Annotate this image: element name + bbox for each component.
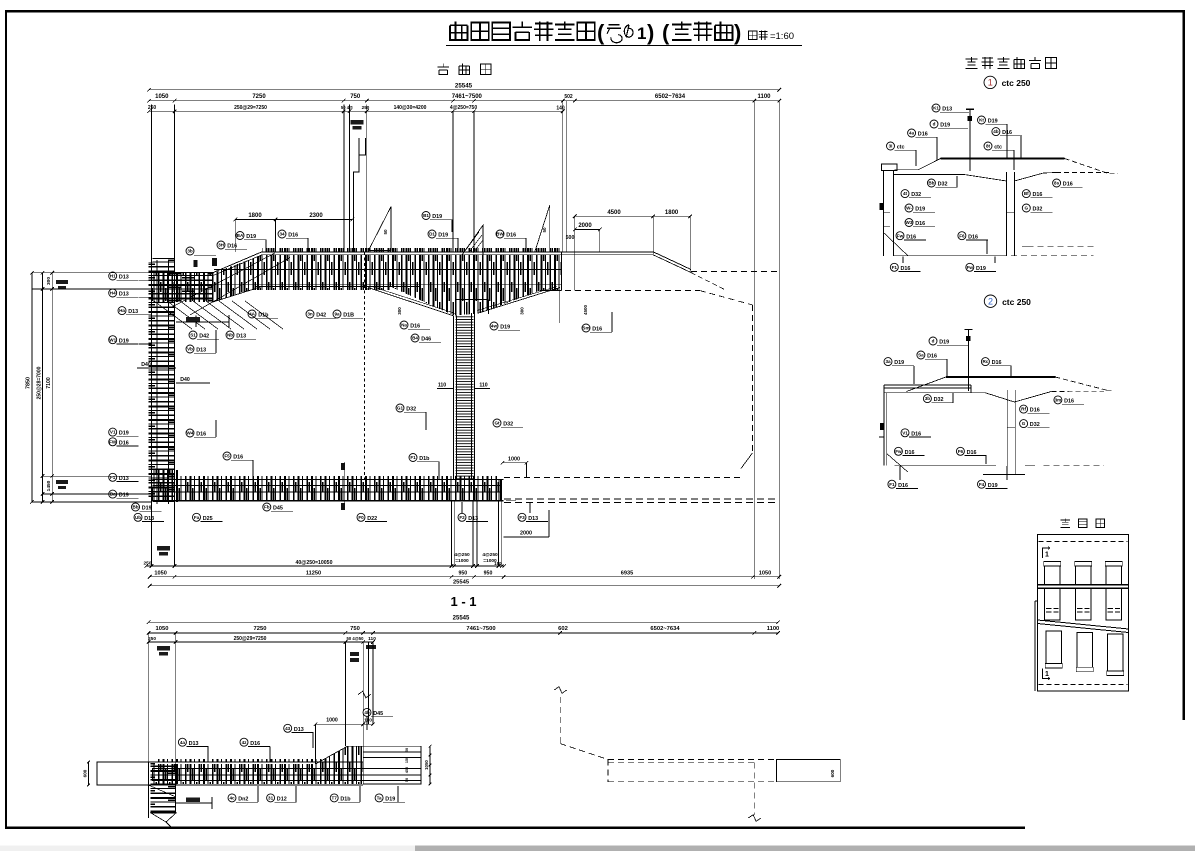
- svg-text:4c: 4c: [229, 796, 235, 801]
- svg-text:Na: Na: [401, 323, 407, 328]
- svg-text:180: 180: [494, 561, 502, 566]
- svg-text:7100: 7100: [46, 377, 52, 389]
- svg-text:D19: D19: [894, 360, 904, 366]
- svg-text:4a: 4a: [909, 131, 915, 136]
- svg-text:950: 950: [458, 571, 467, 577]
- svg-text:1800: 1800: [248, 213, 262, 219]
- svg-text:D46: D46: [421, 337, 431, 343]
- svg-text:ctc: ctc: [994, 145, 1002, 151]
- svg-text:D19: D19: [119, 493, 129, 499]
- svg-text:D1B: D1B: [343, 313, 354, 319]
- svg-text:Kt: Kt: [979, 118, 984, 123]
- svg-text:D40: D40: [180, 377, 190, 383]
- svg-text:D19: D19: [988, 119, 998, 125]
- svg-text:V1: V1: [110, 430, 116, 435]
- svg-text:Fw: Fw: [967, 265, 974, 270]
- svg-text:1000: 1000: [508, 457, 520, 463]
- svg-text:Sa: Sa: [918, 353, 924, 358]
- svg-text:H1: H1: [110, 274, 116, 279]
- svg-text:25545: 25545: [455, 83, 473, 90]
- svg-text:250: 250: [362, 105, 370, 110]
- svg-text:F1: F1: [889, 482, 895, 487]
- svg-text:Bf: Bf: [1024, 191, 1029, 196]
- svg-text:502: 502: [564, 94, 573, 100]
- svg-text:Fb: Fb: [264, 505, 270, 510]
- svg-text:Nb: Nb: [227, 333, 233, 338]
- svg-text:D13: D13: [119, 292, 129, 298]
- svg-text:7461~7500: 7461~7500: [452, 94, 483, 100]
- svg-text:V1: V1: [902, 430, 908, 435]
- svg-text:D13: D13: [294, 727, 304, 733]
- svg-text:F1: F1: [110, 475, 116, 480]
- svg-text:F5: F5: [224, 454, 230, 459]
- svg-text:D16: D16: [905, 450, 915, 456]
- svg-text:4b: 4b: [364, 710, 370, 715]
- svg-text:Sm: Sm: [582, 326, 589, 331]
- svg-text:D16: D16: [250, 741, 260, 747]
- svg-text:D16: D16: [901, 266, 911, 272]
- svg-text:=1000: =1000: [455, 558, 469, 564]
- svg-text:(: (: [662, 20, 670, 45]
- svg-text:F2: F2: [459, 515, 465, 520]
- svg-text:H4: H4: [110, 291, 116, 296]
- svg-text:4500: 4500: [607, 210, 621, 216]
- svg-text:=1:60: =1:60: [770, 31, 794, 42]
- svg-text:1: 1: [637, 24, 646, 43]
- svg-text:110: 110: [438, 383, 446, 389]
- svg-text:7250: 7250: [252, 94, 266, 100]
- svg-text:G: G: [1025, 206, 1029, 211]
- svg-text:Ba: Ba: [110, 492, 116, 497]
- svg-text:F3: F3: [519, 515, 525, 520]
- svg-text:D16: D16: [992, 360, 1002, 366]
- svg-text:D16: D16: [227, 244, 237, 250]
- svg-text:F6: F6: [959, 233, 965, 238]
- svg-text:D19: D19: [246, 234, 256, 240]
- svg-text:ctc 250: ctc 250: [1002, 297, 1031, 307]
- svg-text:450: 450: [405, 767, 409, 773]
- svg-text:F4: F4: [979, 482, 985, 487]
- svg-text:4t: 4t: [903, 191, 908, 196]
- svg-text:4b: 4b: [993, 129, 999, 134]
- svg-text:Ub: Ub: [135, 515, 141, 520]
- svg-text:ctc: ctc: [897, 145, 905, 151]
- svg-text:602: 602: [558, 626, 568, 632]
- svg-text:7850: 7850: [26, 377, 32, 389]
- svg-text:3i: 3i: [889, 144, 893, 149]
- svg-text:2300: 2300: [309, 213, 323, 219]
- svg-text:D19: D19: [939, 340, 949, 346]
- svg-text:250@29=7250: 250@29=7250: [234, 636, 267, 642]
- svg-text:F0: F0: [358, 515, 364, 520]
- svg-text:d: d: [932, 339, 935, 344]
- svg-text:11250: 11250: [306, 571, 321, 577]
- svg-text:250: 250: [148, 105, 157, 111]
- svg-text:150: 150: [405, 757, 409, 763]
- svg-text:F1: F1: [892, 265, 898, 270]
- svg-text:D12: D12: [277, 797, 287, 803]
- svg-text:1100: 1100: [767, 626, 780, 632]
- svg-text:50: 50: [405, 748, 409, 752]
- svg-text:D16: D16: [1033, 192, 1043, 198]
- svg-text:25545: 25545: [453, 580, 470, 586]
- svg-text:W4: W4: [187, 431, 194, 436]
- svg-text:300: 300: [397, 307, 402, 315]
- svg-text:4w: 4w: [491, 324, 498, 329]
- svg-text:D13: D13: [144, 516, 154, 522]
- svg-text:D32: D32: [1030, 422, 1040, 428]
- svg-text:D16: D16: [968, 234, 978, 240]
- svg-text:D1: D1: [429, 232, 435, 237]
- svg-text:250@28=7000: 250@28=7000: [36, 366, 42, 399]
- svg-text:D45: D45: [373, 711, 383, 717]
- svg-text:D16: D16: [911, 431, 921, 437]
- svg-text:D19: D19: [385, 797, 395, 803]
- svg-text:D13: D13: [119, 476, 129, 482]
- svg-text:F1: F1: [410, 455, 416, 460]
- svg-text:Rc: Rc: [982, 359, 988, 364]
- svg-text:D19: D19: [119, 431, 129, 437]
- svg-text:D16: D16: [927, 354, 937, 360]
- svg-text:D22: D22: [367, 516, 377, 522]
- svg-text:Bb: Bb: [132, 505, 138, 510]
- svg-text:8s: 8s: [1054, 181, 1060, 186]
- svg-text:D1b: D1b: [258, 313, 269, 319]
- svg-text:D19: D19: [142, 506, 152, 512]
- svg-text:34: 34: [279, 232, 285, 237]
- svg-text:1000: 1000: [326, 718, 338, 724]
- svg-text:D19: D19: [500, 325, 510, 331]
- svg-text:B4: B4: [412, 336, 418, 341]
- svg-text:D40: D40: [141, 362, 151, 368]
- svg-text:1: 1: [1045, 552, 1049, 559]
- svg-text:D1b: D1b: [419, 456, 430, 462]
- svg-text:D32: D32: [406, 407, 416, 413]
- svg-text:D16: D16: [592, 327, 602, 333]
- svg-text:Dn2: Dn2: [238, 797, 248, 803]
- svg-text:W3: W3: [906, 220, 913, 225]
- svg-text:S1: S1: [190, 333, 196, 338]
- svg-text:4500: 4500: [583, 304, 588, 315]
- svg-text:4@250: 4@250: [454, 552, 470, 558]
- svg-text:D16: D16: [898, 483, 908, 489]
- svg-text:D19: D19: [940, 123, 950, 129]
- svg-text:8t: 8t: [986, 144, 991, 149]
- svg-text:50: 50: [542, 227, 547, 233]
- svg-text:D13: D13: [189, 741, 199, 747]
- svg-text:50: 50: [405, 778, 409, 782]
- svg-text:Ha: Ha: [119, 308, 125, 313]
- svg-text:D16: D16: [410, 324, 420, 330]
- svg-text:1050: 1050: [156, 626, 169, 632]
- svg-text:600: 600: [830, 769, 835, 777]
- svg-text:3b: 3b: [187, 249, 193, 254]
- svg-text:D13: D13: [468, 516, 478, 522]
- svg-text:(: (: [597, 20, 605, 45]
- svg-text:D16: D16: [915, 221, 925, 227]
- svg-text:7250: 7250: [254, 626, 267, 632]
- svg-text:9a: 9a: [334, 312, 340, 317]
- svg-text:750: 750: [350, 626, 360, 632]
- svg-text:D13: D13: [196, 348, 206, 354]
- svg-text:): ): [734, 20, 741, 45]
- svg-text:D16: D16: [906, 234, 916, 240]
- svg-text:Bb: Bb: [928, 181, 934, 186]
- svg-text:G: G: [1022, 421, 1026, 426]
- svg-text:Ta: Ta: [377, 796, 382, 801]
- svg-text:D25: D25: [203, 516, 213, 522]
- svg-text:ctc 250: ctc 250: [1002, 78, 1031, 88]
- svg-text:2000: 2000: [520, 531, 532, 537]
- svg-text:750: 750: [350, 94, 361, 100]
- svg-text:50 4@50: 50 4@50: [347, 636, 365, 641]
- svg-text:1450: 1450: [46, 480, 52, 491]
- svg-text:1100: 1100: [757, 94, 771, 100]
- svg-text:D13: D13: [528, 516, 538, 522]
- svg-text:D16: D16: [506, 233, 516, 239]
- svg-text:D1b: D1b: [340, 797, 351, 803]
- svg-text:1: 1: [988, 78, 993, 88]
- svg-text:3n: 3n: [307, 312, 313, 317]
- svg-text:43: 43: [285, 726, 291, 731]
- svg-text:D16: D16: [119, 440, 129, 446]
- svg-text:D13: D13: [942, 107, 952, 113]
- svg-text:D32: D32: [503, 422, 513, 428]
- svg-text:Rf: Rf: [1021, 407, 1026, 412]
- svg-text:300: 300: [46, 277, 52, 285]
- svg-text:Fw: Fw: [895, 449, 902, 454]
- svg-text:3H: 3H: [218, 243, 225, 248]
- svg-text:D32: D32: [934, 397, 944, 403]
- svg-text:2000: 2000: [578, 223, 592, 229]
- svg-text:BA: BA: [237, 233, 244, 238]
- svg-text:D16: D16: [196, 432, 206, 438]
- svg-text:W-: W-: [906, 206, 912, 211]
- svg-text:D16: D16: [288, 233, 298, 239]
- svg-text:1: 1: [1045, 671, 1049, 678]
- svg-text:4A: 4A: [249, 312, 256, 317]
- svg-text:950: 950: [484, 571, 493, 577]
- svg-text:50: 50: [383, 229, 388, 235]
- svg-text:D45: D45: [273, 506, 283, 512]
- svg-text:6502~7634: 6502~7634: [655, 94, 686, 100]
- svg-text:D16: D16: [233, 455, 243, 461]
- svg-text:D19: D19: [915, 207, 925, 213]
- svg-text:1 - 1: 1 - 1: [450, 594, 476, 609]
- svg-text:D19: D19: [976, 266, 986, 272]
- svg-text:3m: 3m: [1055, 398, 1062, 403]
- svg-text:4z: 4z: [242, 740, 248, 745]
- svg-text:500: 500: [566, 235, 575, 241]
- svg-text:6935: 6935: [621, 571, 633, 577]
- svg-text:110: 110: [479, 383, 487, 389]
- svg-text:3a: 3a: [885, 359, 891, 364]
- svg-text:D16: D16: [1030, 408, 1040, 414]
- svg-text:D13: D13: [128, 309, 138, 315]
- svg-text:Gt: Gt: [494, 421, 500, 426]
- svg-text:D16: D16: [1064, 399, 1074, 405]
- svg-text:B1: B1: [423, 213, 429, 218]
- svg-text:D16: D16: [967, 450, 977, 456]
- svg-text:2: 2: [988, 296, 993, 306]
- svg-text:Vb: Vb: [187, 347, 193, 352]
- svg-text:FW: FW: [109, 439, 117, 444]
- svg-text:Fa: Fa: [194, 515, 200, 520]
- svg-text:1050: 1050: [155, 94, 169, 100]
- svg-text:4a: 4a: [180, 740, 186, 745]
- svg-text:D19: D19: [432, 214, 442, 220]
- svg-text:7461~7500: 7461~7500: [466, 626, 495, 632]
- svg-text:D19: D19: [988, 483, 998, 489]
- svg-text:31: 31: [268, 796, 274, 801]
- svg-text:W1: W1: [109, 337, 116, 342]
- svg-text:D19: D19: [438, 233, 448, 239]
- svg-text:D19: D19: [119, 338, 129, 344]
- svg-text:40@250=10050: 40@250=10050: [296, 560, 333, 566]
- svg-text:300: 300: [520, 307, 525, 315]
- svg-text:3b: 3b: [925, 396, 931, 401]
- svg-text:D42: D42: [199, 334, 209, 340]
- svg-text:110: 110: [364, 718, 372, 724]
- svg-text:D13: D13: [119, 275, 129, 281]
- svg-text:600: 600: [83, 769, 88, 777]
- svg-text:D16: D16: [1063, 182, 1073, 188]
- svg-text:110: 110: [368, 636, 376, 642]
- svg-text:K1: K1: [933, 106, 939, 111]
- svg-text:T7: T7: [332, 796, 338, 801]
- svg-text:6502~7634: 6502~7634: [650, 626, 680, 632]
- svg-text:1050: 1050: [424, 760, 429, 770]
- svg-text:D16: D16: [918, 132, 928, 138]
- svg-text:): ): [647, 20, 654, 45]
- svg-text:140@30=4200: 140@30=4200: [394, 105, 427, 111]
- svg-text:D32: D32: [911, 192, 921, 198]
- svg-text:250@29=7250: 250@29=7250: [234, 105, 267, 111]
- svg-text:D42: D42: [316, 313, 326, 319]
- svg-text:1800: 1800: [665, 210, 679, 216]
- svg-text:D32: D32: [938, 182, 948, 188]
- svg-text:1050: 1050: [154, 571, 166, 577]
- svg-text:G1: G1: [397, 406, 404, 411]
- svg-text:4@250: 4@250: [482, 552, 498, 558]
- svg-text:BW: BW: [496, 232, 504, 237]
- svg-text:50 4@: 50 4@: [341, 105, 353, 110]
- svg-text:25545: 25545: [453, 616, 470, 622]
- svg-text:F6: F6: [958, 449, 964, 454]
- svg-text:D16: D16: [1002, 130, 1012, 136]
- svg-text:d: d: [933, 122, 936, 127]
- svg-text:1050: 1050: [759, 571, 771, 577]
- svg-text:Fw: Fw: [897, 233, 904, 238]
- svg-text:D13: D13: [236, 334, 246, 340]
- svg-text:D32: D32: [1033, 207, 1043, 213]
